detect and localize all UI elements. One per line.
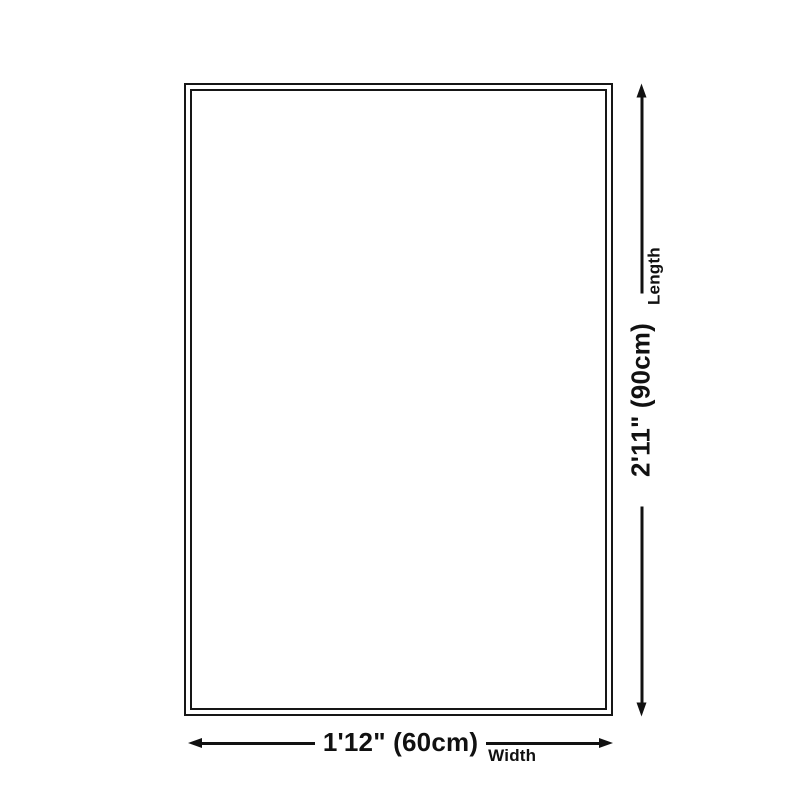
- rug-inner-border: [190, 89, 607, 710]
- width-dimension-arrow: 1'12" (60cm) Width: [188, 721, 613, 765]
- width-label: Width: [488, 747, 536, 764]
- arrowhead-left-icon: [188, 738, 202, 748]
- rug-outline: [184, 83, 613, 716]
- length-dimension-arrow: 2'11" (90cm) Length: [619, 83, 663, 716]
- arrowhead-down-icon: [636, 702, 646, 716]
- arrowhead-right-icon: [599, 738, 613, 748]
- length-dimension-line-start: [640, 506, 643, 702]
- width-value: 1'12" (60cm): [315, 729, 486, 755]
- width-dimension-line-start: [202, 742, 315, 745]
- arrowhead-up-icon: [636, 83, 646, 97]
- length-value: 2'11" (90cm): [627, 293, 653, 507]
- length-label: Length: [645, 247, 662, 305]
- width-dimension-line-end: Width: [486, 742, 599, 745]
- length-dimension-line-end: Length: [640, 97, 643, 293]
- rug-size-diagram: 1'12" (60cm) Width 2'11" (90cm) Length: [0, 0, 800, 800]
